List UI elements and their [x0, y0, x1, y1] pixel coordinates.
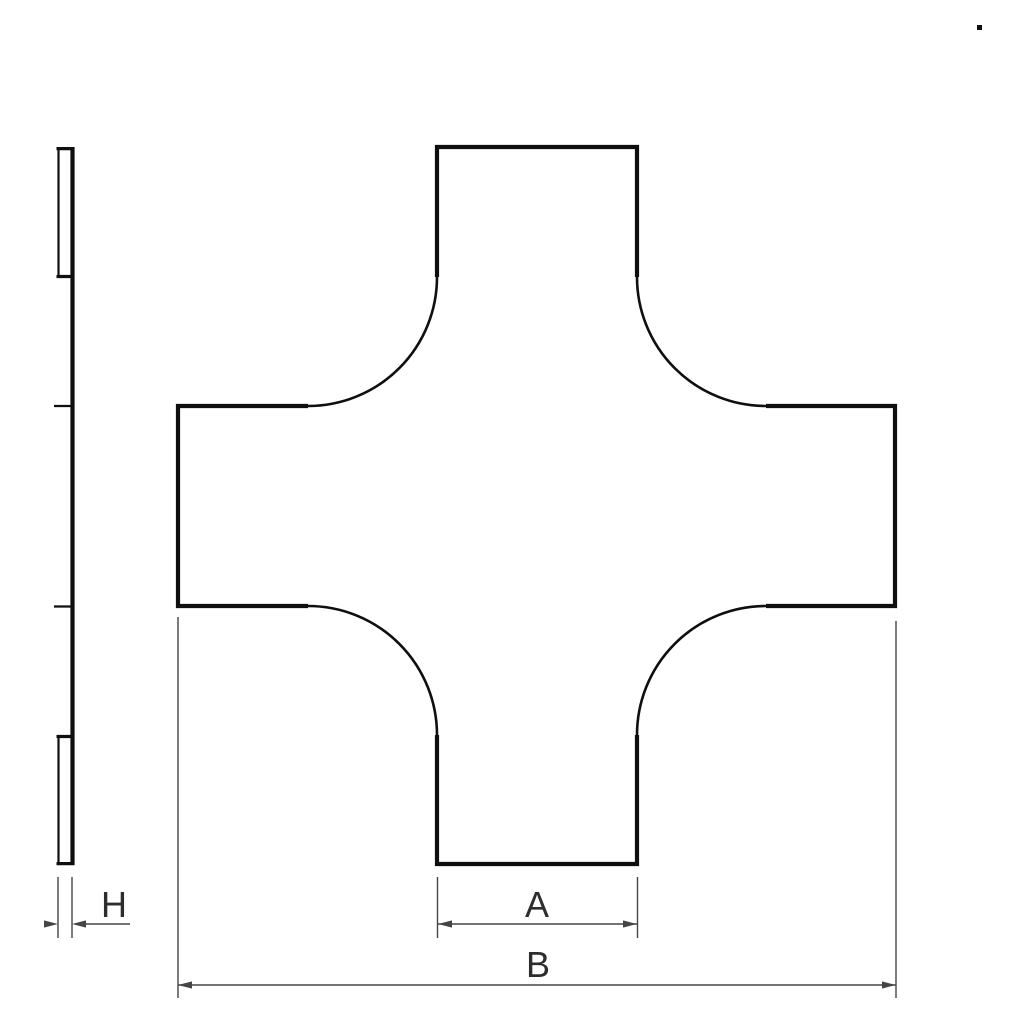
stray-dot [977, 25, 982, 30]
dim-b-label: B [526, 944, 550, 985]
fillet-top-right [637, 277, 766, 406]
dim-h-arrowhead-right [72, 920, 86, 927]
cross-front-view [178, 147, 895, 864]
cross-left-arm-edges [178, 406, 308, 606]
dimension-h: H [44, 877, 130, 938]
side-profile-view [54, 147, 75, 865]
dim-b-arrowhead-left [178, 981, 192, 988]
fillet-top-left [308, 277, 437, 406]
dim-h-arrowhead-left [44, 920, 58, 927]
drawing-sheet: H A B [0, 0, 1024, 1024]
cross-top-arm-edges [437, 147, 637, 277]
dim-h-label: H [101, 884, 127, 925]
dim-a-arrowhead-right [623, 920, 637, 927]
dim-a-label: A [525, 884, 549, 925]
cross-right-arm-edges [766, 406, 895, 606]
dimension-b: B [178, 617, 896, 998]
dim-b-arrowhead-right [882, 981, 896, 988]
cross-bottom-arm-edges [437, 735, 637, 864]
dimension-a: A [438, 877, 638, 938]
dim-a-arrowhead-left [438, 920, 452, 927]
fillet-bottom-right [637, 606, 766, 735]
technical-drawing-canvas: H A B [0, 0, 1024, 1024]
fillet-bottom-left [308, 606, 437, 735]
